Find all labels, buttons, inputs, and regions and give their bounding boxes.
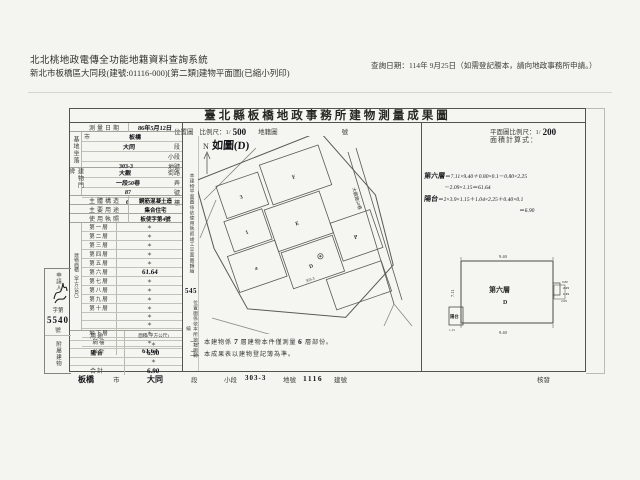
header-divider (28, 92, 612, 93)
plan-dim-right: 2.25 (563, 286, 569, 290)
structure-row: 主體構造 鋼筋混凝土造 (70, 196, 182, 205)
plan-dim-top: 9.40 (499, 254, 508, 259)
building-info-table: 測量日期 86年5月12日 基地坐落 市板橋 大同段 小段 303-3地號 建物… (70, 123, 183, 371)
table-row: 第十層＊ (82, 304, 182, 313)
survey-date-value: 86年5月12日 (138, 123, 173, 132)
remarks: 一、本建物係7層建物本件僅測量6層部份。 二、本成果表以建物登記簿為準。 (190, 336, 430, 361)
table-row: ＊ (70, 358, 182, 366)
footer-building-number: 1116 (303, 374, 323, 383)
address-group-label: 建物門牌 (67, 168, 85, 195)
floor-label: 第七層 (82, 277, 117, 285)
plan-dim-right: 1.15 (563, 292, 569, 296)
table-row: 市板橋 (82, 132, 182, 142)
floor-label: 第四層 (82, 250, 117, 258)
floor-value: ＊ (117, 296, 182, 303)
floor-label: 第六層 (82, 268, 117, 276)
cell-value: 板橋 (129, 132, 142, 141)
annex-usage-header: 用途 (70, 331, 125, 340)
cell-suffix: 小段 (168, 152, 180, 161)
floor-label: 第十層 (82, 304, 117, 312)
parcel-label: E (295, 220, 301, 227)
footer-city: 板橋 (78, 374, 94, 385)
floor-value: ＊ (117, 224, 182, 231)
address-section: 建物門牌 大觀街路 一段50巷弄 87號 6樓 (70, 168, 182, 196)
footer-parcel-label: 地號 (283, 374, 296, 384)
location-map-sketch: N (198, 136, 421, 334)
cell-suffix: 街路 (168, 168, 180, 177)
table-row: 陽台6.90 (70, 349, 182, 358)
area-calculation: 第六層＝7.11×9.40＋0.80×0.1－0.80×2.25 －2.09×1… (424, 171, 584, 217)
survey-date-label: 測量日期 (82, 123, 129, 132)
floor-label: 第二層 (82, 232, 117, 240)
cell-value: 大觀 (119, 168, 132, 177)
usage-row: 主要用途 集合住宅 (70, 205, 182, 214)
plan-dim-right: 0.80 (562, 280, 568, 284)
table-row: 大觀街路 (82, 168, 182, 178)
floor-value: ＊ (117, 242, 182, 249)
document-subtitle: 新北市板橋區大同段(建號:01116-000)[第二類]建物平面圖(已縮小列印) (30, 67, 290, 79)
calc-line: 陽台＝2×3.9×1.15＋1.04×2.25＋0.40×0.1 (423, 194, 584, 206)
cell-suffix: 弄 (174, 178, 180, 187)
note-top: 本建物平面圖係依使用執照竣工平面圖轉繪 (188, 164, 195, 282)
road-label: 大觀路50巷 (350, 187, 364, 211)
annex-section: 用途面積(平方公尺) ＊ 陽台6.90 ＊ 合計6.90 (70, 331, 182, 370)
measured-floor-handwritten: 6 (298, 336, 303, 348)
table-row: 大同段 (82, 142, 182, 152)
table-row: ＊ (70, 341, 182, 349)
parcel-label: F (291, 174, 297, 181)
plan-dim-right: 2.09 (561, 299, 567, 303)
structure-value: 鋼筋混凝土造 (139, 199, 172, 205)
table-row: 第一層＊ (82, 223, 182, 232)
parcel-label: a (254, 265, 259, 272)
north-arrow-icon (204, 152, 210, 174)
system-title: 北北桃地政電傳全功能地籍資料查詢系統 (30, 52, 208, 66)
footer-subsection-label: 小段 (224, 374, 237, 384)
floor-value: ＊ (117, 321, 182, 328)
cadastral-map-label: 地籍圖 (258, 126, 278, 136)
road-line (348, 152, 394, 304)
floor-value: ＊ (117, 305, 182, 312)
map-scale-value: 500 (233, 128, 247, 136)
parcel-label: 3 (239, 194, 244, 201)
scanned-document-page: 北北桃地政電傳全功能地籍資料查詢系統 新北市板橋區大同段(建號:01116-00… (0, 0, 640, 480)
footer-approve-label: 核發 (537, 374, 550, 384)
floor-label: 第三層 (82, 241, 117, 249)
floor-label (82, 313, 117, 320)
remark-line-2: 二、本成果表以建物登記簿為準。 (190, 349, 430, 361)
table-row: 第五層＊ (82, 259, 182, 268)
usage-value: 集合住宅 (144, 208, 166, 214)
annex-value: 6.90 (147, 349, 160, 357)
footer-section: 大同 (147, 374, 163, 385)
annex-value: ＊ (125, 341, 182, 348)
table-row: 第三層＊ (82, 241, 182, 250)
floor-label: 第八層 (82, 286, 117, 294)
floor-value: ＊ (117, 287, 182, 294)
cell-value: 87 (125, 190, 131, 196)
calc-line: ＝6.90 (518, 206, 584, 217)
survey-date-row: 測量日期 86年5月12日 (70, 123, 182, 132)
annex-header-row: 用途面積(平方公尺) (70, 331, 182, 341)
plan-dim-bottom: 9.40 (499, 330, 508, 335)
annex-group-label: 附屬建物 (54, 341, 62, 367)
usage-label: 主要用途 (82, 205, 129, 214)
file-number-545: 545 (184, 287, 198, 295)
table-row: ＊ (82, 313, 182, 321)
footer-building-label: 建號 (334, 374, 347, 384)
cadastral-number-suffix: 號 (342, 126, 349, 136)
location-map-scale-band: 位置圖 比例尺：1/ 500 地籍圖 號 (174, 125, 420, 136)
table-row: 第七層＊ (82, 277, 182, 286)
license-row: 使用執照 板使字第4號 (70, 214, 182, 223)
floor-value: ＊ (117, 251, 182, 258)
remark-line-1: 一、本建物係7層建物本件僅測量6層部份。 (190, 336, 430, 349)
annex-value: ＊ (125, 358, 182, 365)
floor-count-handwritten: 7 (234, 336, 239, 348)
floor-label (82, 321, 117, 328)
calc-line: 第六層＝7.11×9.40＋0.80×0.1－0.80×2.25 (423, 171, 584, 183)
parcel-label: P (353, 234, 359, 241)
table-row: 第九層＊ (82, 295, 182, 304)
calc-line: －2.09×1.15＝61.64 (443, 183, 584, 194)
table-row: 一段50巷弄 (82, 178, 182, 188)
site-location-group-label: 基地坐落 (71, 136, 80, 164)
floor-label: 第九層 (82, 295, 117, 303)
floor-label: 第一層 (82, 223, 117, 231)
cell-value: 一段50巷 (116, 178, 141, 187)
balcony-dim: 1.15 (449, 328, 455, 332)
plan-scale-value: 200 (543, 128, 557, 136)
parcel-label: D (308, 263, 314, 270)
road-line (356, 148, 402, 300)
floor-value: ＊ (117, 233, 182, 240)
structure-label: 主體構造 (82, 196, 129, 205)
map-scale-label: 比例尺：1/ (200, 126, 231, 136)
floor-value: ＊ (117, 313, 182, 320)
floor-plan-drawing: 9.40 9.40 7.11 0.80 2.25 1.15 2.09 第六層 D… (441, 249, 581, 341)
transcription-note-strip: 本建物平面圖係依使用執照竣工平面圖轉繪 545 位置圖係依本所地籍圖轉繪 (184, 164, 198, 362)
floor-label: 第五層 (82, 259, 117, 267)
table-row: ＊ (82, 321, 182, 329)
plan-floor-label: 第六層 (489, 285, 510, 294)
file-number-prefix: 字第 (45, 306, 71, 314)
floor-value: 61.64 (141, 268, 157, 276)
form-right-margin-column (586, 108, 605, 374)
footer-section-suffix: 段 (191, 374, 198, 384)
file-number-5540: 5540 (45, 315, 71, 325)
site-location-section: 基地坐落 市板橋 大同段 小段 303-3地號 (70, 132, 182, 168)
plan-unit-label: D (503, 300, 508, 306)
cell-value: 大同 (123, 142, 136, 151)
license-label: 使用執照 (82, 214, 129, 223)
plan-balcony-label: 陽台 (450, 313, 459, 320)
table-row: 第六層61.64 (82, 268, 182, 277)
plan-dim-left: 7.11 (450, 289, 455, 297)
floor-area-group-label: 建物面積（平方公尺） (72, 253, 79, 301)
survey-result-form: 臺北縣板橋地政事務所建物測量成果圖 位置圖 比例尺：1/ 500 地籍圖 號 平… (69, 108, 586, 372)
annex-label: 陽台 (70, 349, 125, 357)
parcel-cluster: 3 F 1 E a D P 303-3 (198, 136, 410, 334)
annex-label (70, 341, 125, 348)
table-row: 第四層＊ (82, 250, 182, 259)
floor-area-section: 建物面積（平方公尺） 第一層＊ 第二層＊ 第三層＊ 第四層＊ 第五層＊ 第六層6… (70, 223, 182, 331)
annex-area-header: 面積(平方公尺) (125, 333, 182, 339)
annex-label (70, 358, 125, 365)
cell-suffix: 段 (174, 142, 180, 151)
table-row: 第二層＊ (82, 232, 182, 241)
parcel-label: 1 (245, 229, 250, 236)
table-row: 第八層＊ (82, 286, 182, 295)
applicant-signature (52, 277, 68, 305)
floor-value: ＊ (117, 260, 182, 267)
floor-value: ＊ (117, 278, 182, 285)
license-value: 板使字第4號 (140, 217, 170, 223)
footer-parcel-number: 303-3 (245, 374, 266, 382)
query-date: 查詢日期：114年 9月25日（如需登記謄本，請向地政事務所申請。） (371, 60, 597, 71)
area-calc-label: 面積計算式： (490, 135, 538, 145)
footer-city-suffix: 市 (113, 374, 120, 384)
grid-line (421, 123, 422, 371)
applicant-column: 申請人 字第 5540 號 附屬建物 (44, 268, 71, 374)
file-number-suffix: 號 (45, 326, 71, 334)
form-title: 臺北縣板橋地政事務所建物測量成果圖 (70, 109, 585, 123)
north-label: N (203, 142, 209, 151)
table-row: 小段 (82, 152, 182, 162)
